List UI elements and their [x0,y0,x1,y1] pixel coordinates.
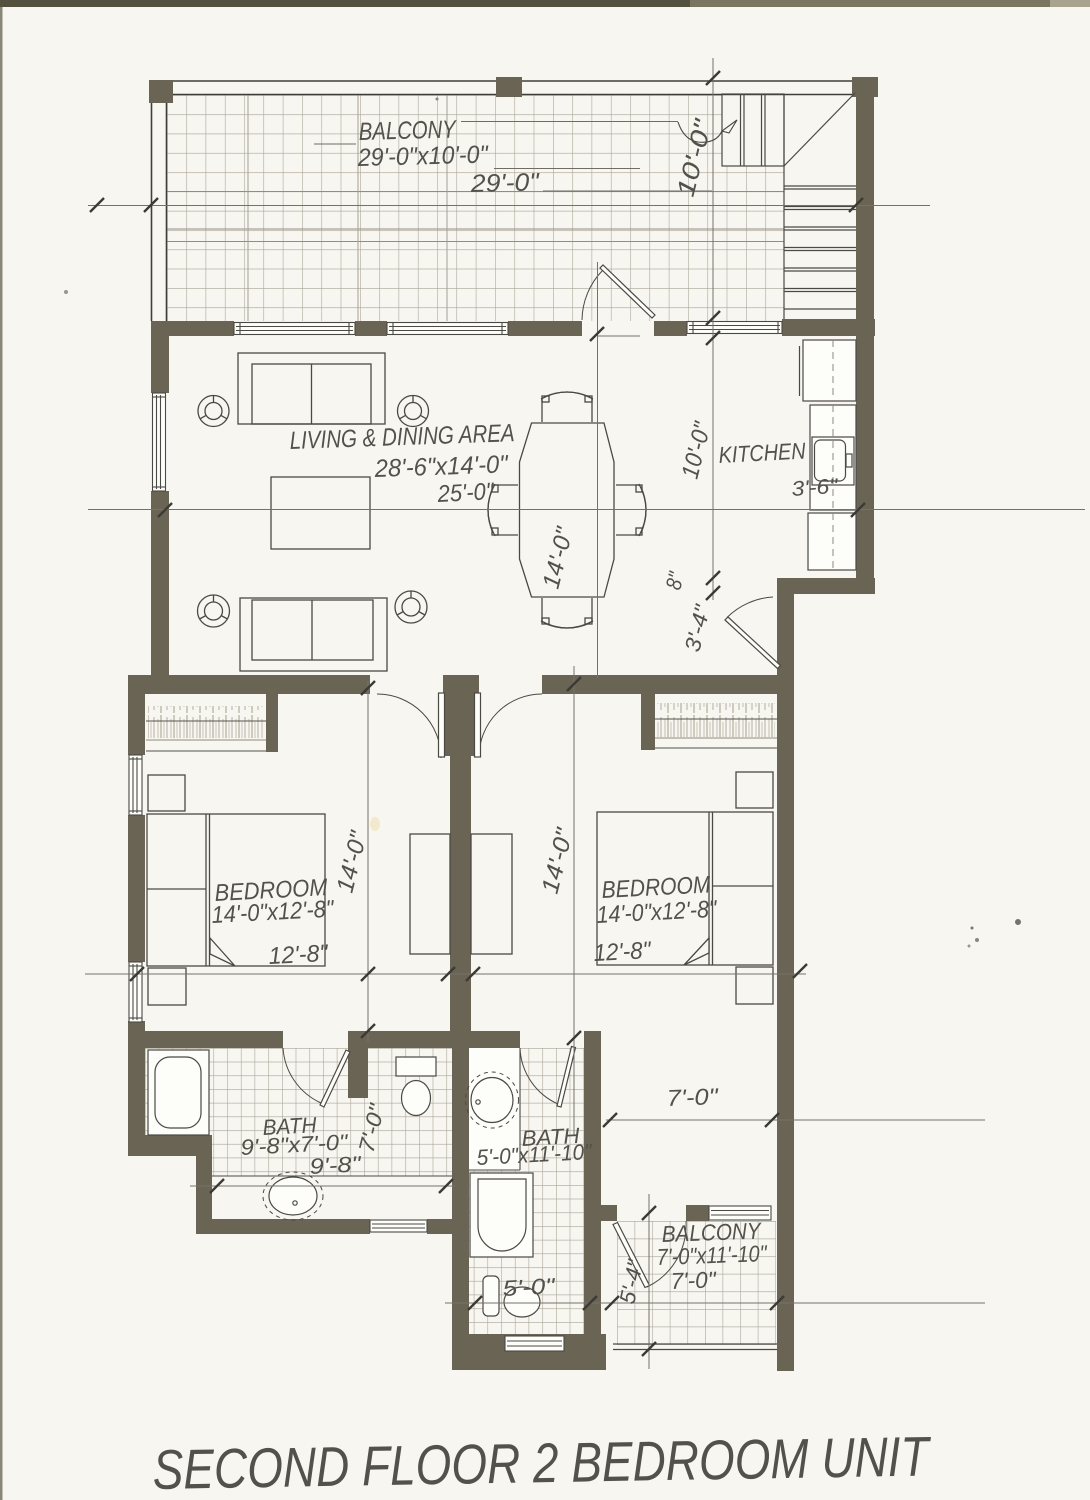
svg-text:3'-6": 3'-6" [791,475,840,501]
svg-text:7'-0"x11'-10": 7'-0"x11'-10" [656,1240,768,1270]
svg-text:9'-8": 9'-8" [309,1151,363,1179]
svg-text:29'-0"x10'-0": 29'-0"x10'-0" [356,141,489,172]
svg-text:7'-0": 7'-0" [666,1083,720,1111]
svg-text:29'-0": 29'-0" [469,168,540,198]
svg-text:12'-8": 12'-8" [593,937,653,967]
svg-text:SECOND FLOOR 2 BEDROOM UNIT: SECOND FLOOR 2 BEDROOM UNIT [152,1424,932,1500]
svg-text:12'-8": 12'-8" [268,940,330,970]
svg-text:7'-0": 7'-0" [670,1266,718,1294]
svg-text:5'-0": 5'-0" [502,1273,557,1301]
svg-text:25'-0": 25'-0" [436,478,496,508]
svg-text:KITCHEN: KITCHEN [718,437,807,468]
